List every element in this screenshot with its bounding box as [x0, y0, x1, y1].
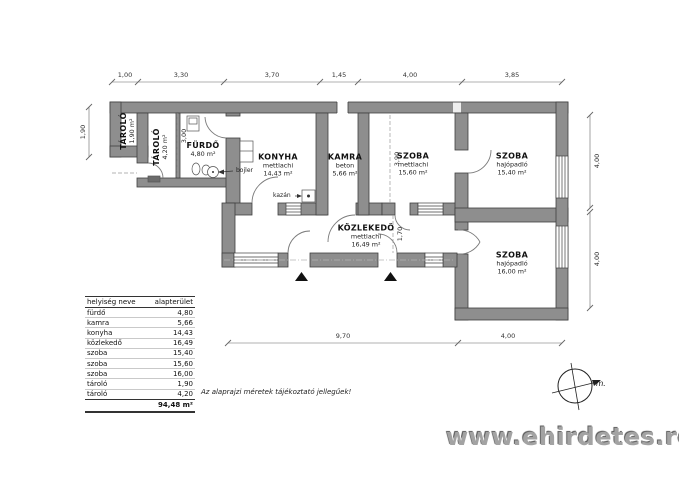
window-konyha-bottom [286, 203, 301, 215]
table-total-value: 94,48 m² [158, 401, 193, 409]
wall-tarolo-divider [137, 113, 148, 163]
door-arc-konyha [252, 177, 278, 203]
door-arc-szoba3-b [458, 242, 480, 254]
table-row: kamra5,66 [85, 318, 195, 328]
dim-top-4: 1,45 [332, 71, 346, 79]
table-row: szoba15,40 [85, 349, 195, 359]
room-label-szoba-1: SZOBA mettlachi 15,60 m² [397, 151, 429, 176]
sink-fixture [192, 163, 200, 175]
window-szoba2-right [556, 156, 568, 198]
dim-top-1: 1,00 [118, 71, 132, 79]
entrance-markers [295, 272, 397, 281]
floorplan-page: TÁROLÓ 1,90 m² TÁROLÓ 4,20 m² FÜRDŐ 4,80… [0, 0, 679, 480]
dim-left-1: 1,90 [79, 125, 87, 139]
dim-right-1: 4,00 [593, 154, 601, 168]
bojler-arrowhead [218, 170, 224, 175]
dim-top-3: 3,70 [265, 71, 279, 79]
kazan-arrowhead [297, 194, 302, 198]
table-row: közlekedő16,49 [85, 339, 195, 349]
compass-label: m. [596, 379, 606, 388]
disclaimer-note: Az alaprajzi méretek tájékoztató jellegű… [201, 388, 351, 396]
table-header-name: helyiség neve [87, 298, 136, 306]
window-szoba3-right [556, 226, 568, 268]
room-label-tarolo: TÁROLÓ 4,20 m² [152, 128, 170, 165]
table-row: fürdő4,80 [85, 308, 195, 318]
window-szoba1-bottom [418, 203, 443, 215]
room-label-kamra: KAMRA beton 5,66 m² [328, 152, 362, 177]
wall-szoba2-szoba3-band [455, 208, 568, 222]
room-label-szoba-2: SZOBA hajópadló 15,40 m² [496, 151, 528, 176]
dim-bottom-1: 9,70 [336, 332, 350, 340]
room-area-table: helyiség neve alapterület fürdő4,80 kamr… [85, 296, 195, 413]
table-header-area: alapterület [155, 298, 193, 306]
table-total-row: 94,48 m² [85, 400, 195, 413]
wall-szoba1-bottom-b [410, 203, 418, 215]
wall-right-outer [556, 102, 568, 320]
room-label-tarolo-small: TÁROLÓ 1,90 m² [119, 112, 137, 149]
wall-furdo-partition [176, 113, 180, 178]
chimney-joint [337, 102, 348, 114]
wall-szoba3-bottom [455, 308, 568, 320]
wall-konyha-left-upper [226, 113, 240, 116]
dim-top-2: 3,30 [174, 71, 188, 79]
bojler-label: bojler [236, 167, 253, 174]
door-arc-szoba2 [468, 150, 491, 173]
room-label-konyha: KONYHA mettlachi 14,43 m² [258, 152, 298, 177]
toilet-tank [189, 118, 197, 124]
entrance-triangle-1 [295, 272, 308, 281]
table-row: szoba15,60 [85, 359, 195, 369]
room-label-kozlekedo: KÖZLEKEDŐ mettlachi 16,49 m² [338, 223, 395, 248]
dim-top-6: 3,85 [505, 71, 519, 79]
walls [110, 102, 568, 320]
kazan-label: kazán [273, 192, 291, 199]
room-label-furdo: FÜRDŐ 4,80 m² [186, 141, 219, 159]
wall-szoba1-bottom-a [382, 203, 395, 215]
threshold-step [148, 176, 160, 182]
table-row: szoba16,00 [85, 369, 195, 379]
door-arc-entry-1 [288, 231, 310, 253]
boiler-center-dot [212, 171, 214, 173]
wall-joint-2 [453, 103, 461, 113]
dim-bottom-2: 4,00 [501, 332, 515, 340]
room-label-szoba-3: SZOBA hajópadló 16,00 m² [496, 250, 528, 275]
compass [552, 363, 601, 410]
table-row: konyha14,43 [85, 328, 195, 338]
kitchen-counter [240, 141, 253, 162]
table-row: tároló4,20 [85, 390, 195, 400]
wall-szoba-divider-upper [455, 113, 468, 150]
door-arc-furdo [205, 117, 226, 138]
entrance-triangle-2 [384, 272, 397, 281]
watermark: www.ehirdetes.ro [446, 423, 679, 451]
table-row: tároló1,90 [85, 379, 195, 389]
table-header-row: helyiség neve alapterület [85, 296, 195, 308]
dim-top-5: 4,00 [403, 71, 417, 79]
door-arc-szoba3-a [458, 230, 480, 242]
dim-interior-300: 3,00 [180, 129, 188, 143]
kazan-dot [307, 195, 310, 198]
dim-interior-170: 1,70 [396, 227, 404, 241]
wall-konyha-kamra-divider [316, 113, 328, 215]
dim-right-2: 4,00 [593, 252, 601, 266]
dim-interior-390: 3,90 [393, 152, 401, 166]
